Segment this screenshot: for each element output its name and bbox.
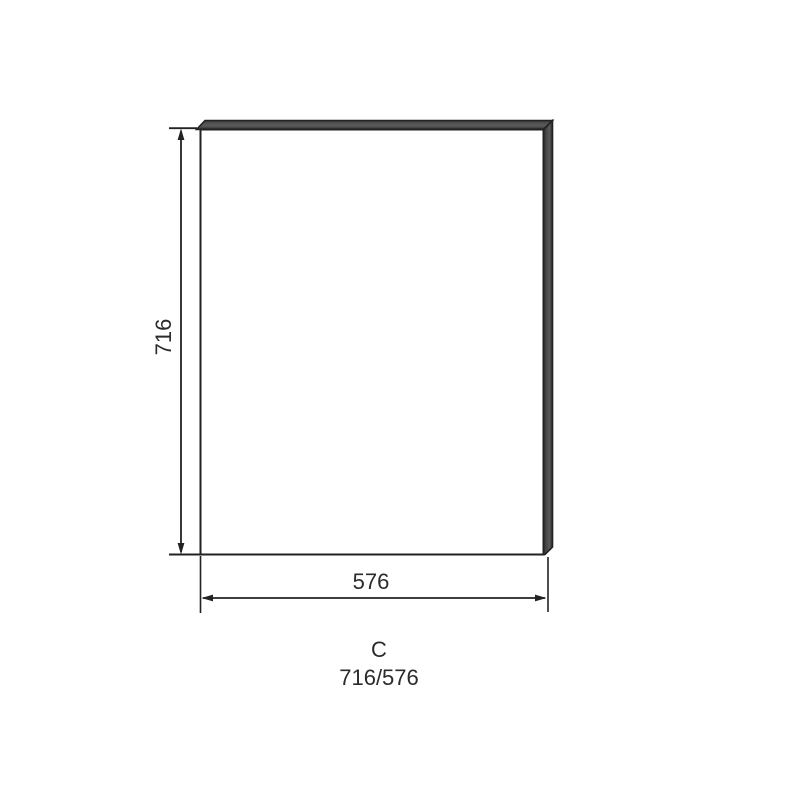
panel-drawing-image: 716 576 C 716/576 (0, 0, 800, 800)
panel-right-edge (544, 121, 553, 555)
width-dim-arrow-left-icon (202, 595, 214, 602)
panel-size-label: 716/576 (339, 665, 419, 690)
panel-top-edge (197, 121, 553, 130)
height-dimension-label: 716 (151, 319, 176, 356)
width-dimension-label: 576 (353, 569, 390, 594)
panel-drawing-svg: 716 576 C 716/576 (0, 0, 800, 800)
width-dim-arrow-right-icon (535, 595, 547, 602)
height-dim-arrow-bottom-icon (178, 543, 185, 555)
panel-code-label: C (371, 637, 387, 662)
height-dim-arrow-top-icon (178, 129, 185, 141)
panel-front-face (201, 130, 544, 555)
